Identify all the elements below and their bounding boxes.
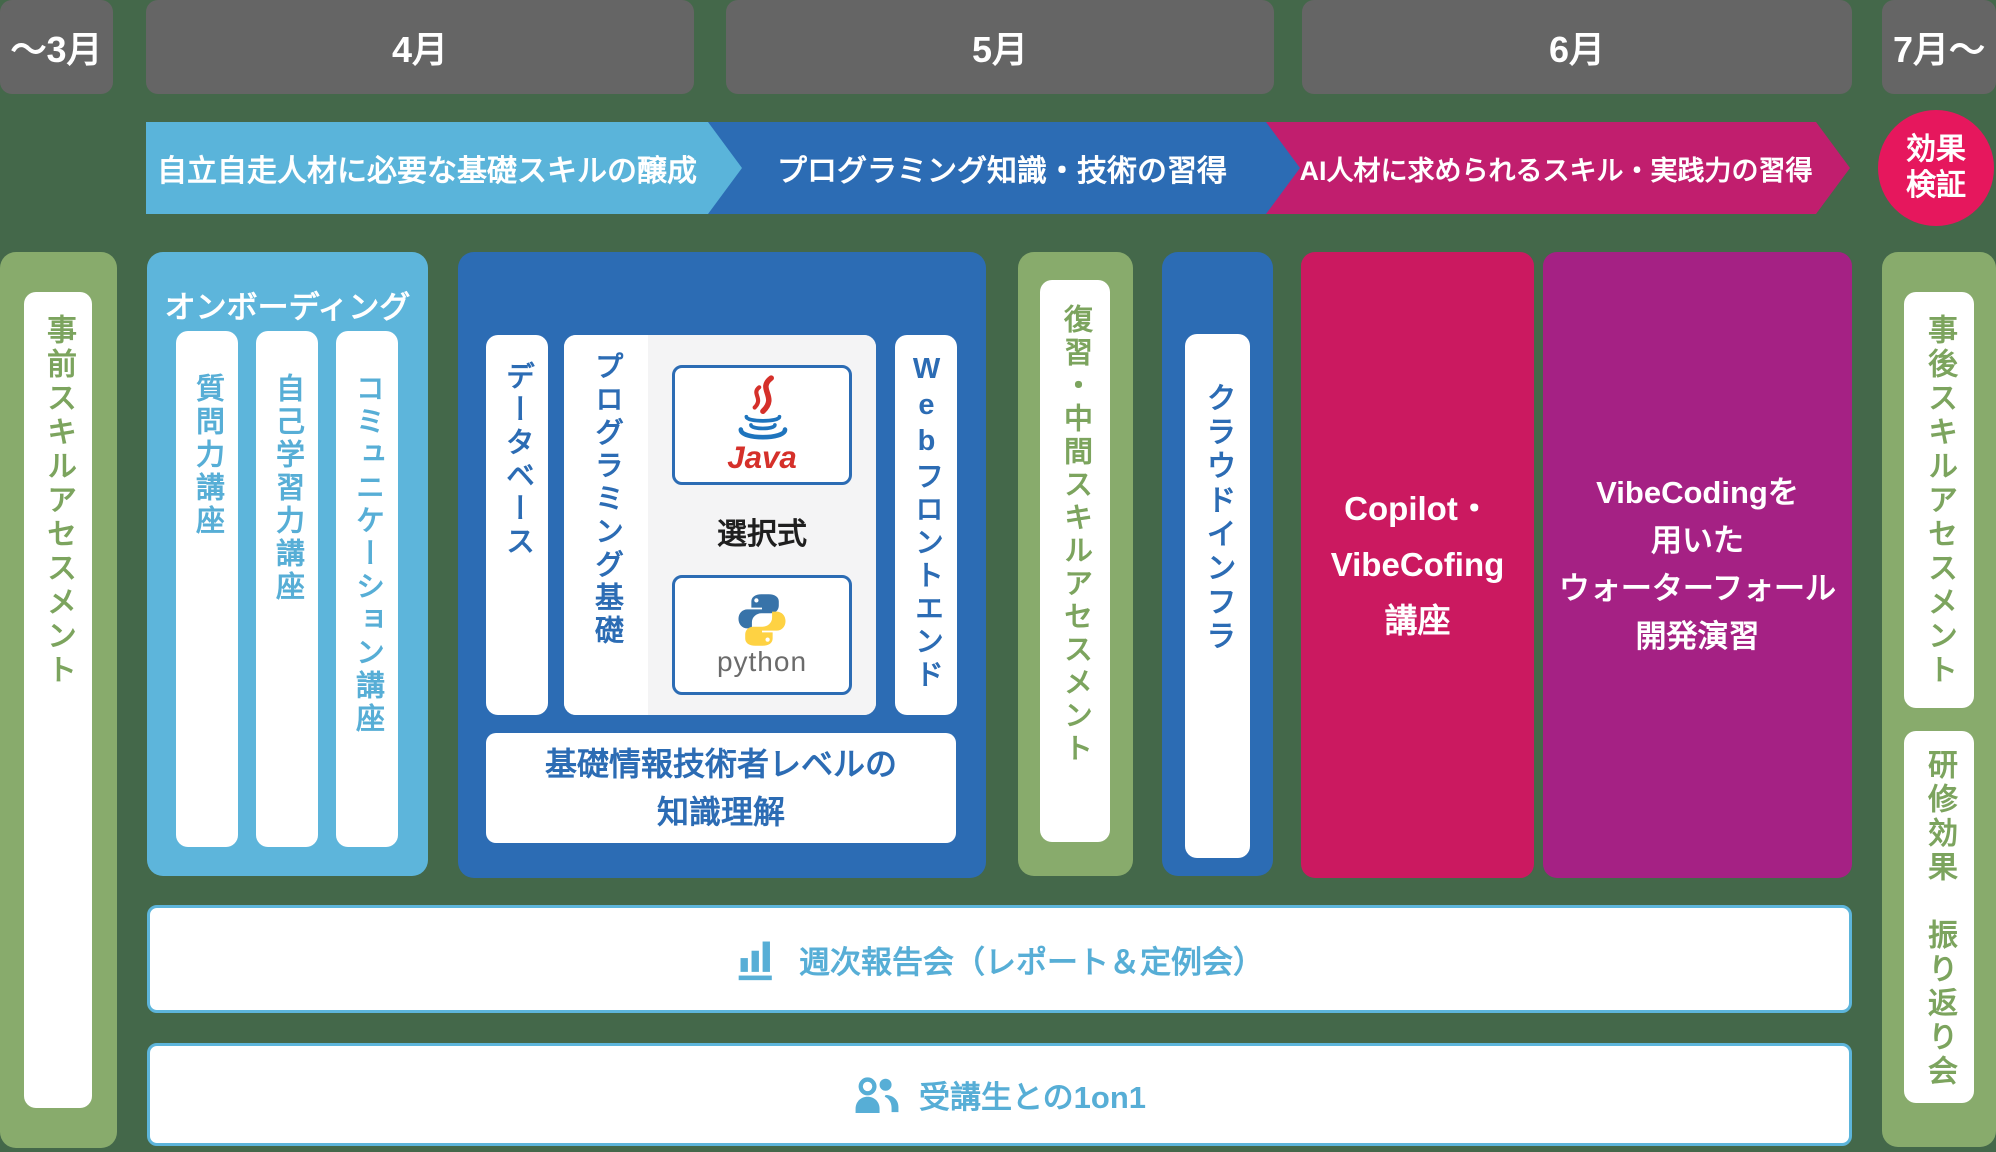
copilot-course-box: Copilot・ VibeCofing 講座 [1301,252,1534,878]
vibecoding-line3: ウォーターフォール [1559,565,1836,613]
java-option-box: Java [672,365,852,485]
month-header-april: 4月 [146,0,694,94]
mid-assessment-pill: 復習・中間スキルアセスメント [1040,280,1110,842]
month-header-july: 7月～ [1882,0,1996,94]
one-on-one-bar: 受講生との1on1 [147,1043,1852,1146]
database-pill: データベース [486,335,548,715]
pre-skill-assessment-column: 事前スキルアセスメント [0,252,117,1148]
programming-basics-label: プログラミング基礎 [592,351,621,715]
cloud-infra-column: クラウドインフラ [1162,252,1273,876]
fe-level-line1: 基礎情報技術者レベルの [545,740,897,788]
copilot-line2: VibeCofing [1331,537,1505,593]
vibecoding-line2: 用いた [1651,517,1744,565]
python-wordmark: python [717,646,807,678]
course-self-learning-label: 自己学習力講座 [273,373,302,847]
post-assessment-column: 事後スキルアセスメント 研修効果 振り返り会 [1882,252,1996,1147]
course-communication-pill: コミュニケーション講座 [336,331,398,847]
java-logo-icon: Java [716,374,808,476]
web-frontend-label: Webフロントエンド [912,353,941,715]
one-on-one-label: 受講生との1on1 [919,1072,1146,1117]
language-choice-panel: Java 選択式 python [648,335,876,715]
phase-arrow-programming: プログラミング知識・技術の習得 [708,122,1300,214]
onboarding-title: オンボーディング [147,282,428,327]
fe-level-box: 基礎情報技術者レベルの 知識理解 [486,733,956,843]
vibecoding-line1: VibeCodingを [1596,469,1799,517]
month-header-march: ～3月 [0,0,113,94]
month-header-june: 6月 [1302,0,1852,94]
web-frontend-pill: Webフロントエンド [895,335,957,715]
course-questioning-pill: 質問力講座 [176,331,238,847]
retrospective-label: 研修効果 振り返り会 [1924,749,1954,1103]
vibecoding-line4: 開発演習 [1636,613,1760,661]
course-questioning-label: 質問力講座 [193,373,222,847]
web-frontend-latin: Web [911,353,943,461]
post-assessment-label: 事後スキルアセスメント [1924,314,1954,708]
post-assessment-pill: 事後スキルアセスメント [1904,292,1974,708]
retrospective-pill: 研修効果 振り返り会 [1904,731,1974,1103]
verify-line2: 検証 [1906,168,1966,204]
phase-arrow-ai-skills: AI人材に求められるスキル・実践力の習得 [1266,122,1850,214]
curriculum-roadmap: ～3月 4月 5月 6月 7月～ 自立自走人材に必要な基礎スキルの醸成 プログラ… [0,0,1996,1152]
python-logo-icon [734,592,790,648]
copilot-course-text: Copilot・ VibeCofing 講座 [1301,252,1534,878]
copilot-line1: Copilot・ [1344,481,1491,537]
vibecoding-exercise-box: VibeCodingを 用いた ウォーターフォール 開発演習 [1543,252,1852,878]
people-icon [853,1074,901,1116]
effect-verification-badge: 効果 検証 [1878,110,1994,226]
vibecoding-exercise-text: VibeCodingを 用いた ウォーターフォール 開発演習 [1543,252,1852,878]
pre-skill-assessment-pill: 事前スキルアセスメント [24,292,92,1108]
programming-basics-pill: プログラミング基礎 [564,335,648,715]
java-wordmark: Java [727,440,797,475]
cloud-infra-label: クラウドインフラ [1203,382,1233,858]
cloud-infra-pill: クラウドインフラ [1185,334,1250,858]
mid-assessment-column: 復習・中間スキルアセスメント [1018,252,1133,876]
database-label: データベース [503,361,532,715]
pre-skill-assessment-label: 事前スキルアセスメント [43,314,73,1108]
web-frontend-kana: フロントエンド [911,461,943,692]
selective-label: 選択式 [717,509,807,553]
course-communication-label: コミュニケーション講座 [353,373,382,847]
python-option-box: python [672,575,852,695]
month-header-may: 5月 [726,0,1274,94]
verify-line1: 効果 [1906,132,1966,168]
weekly-report-label: 週次報告会（レポート＆定例会） [799,937,1264,982]
phase-arrow-basic-skills: 自立自走人材に必要な基礎スキルの醸成 [146,122,742,214]
programming-box: データベース プログラミング基礎 Java 選択式 [458,252,986,878]
course-self-learning-pill: 自己学習力講座 [256,331,318,847]
onboarding-box: オンボーディング 質問力講座 自己学習力講座 コミュニケーション講座 [147,252,428,876]
mid-assessment-label: 復習・中間スキルアセスメント [1061,304,1090,842]
programming-basics-panel: プログラミング基礎 Java 選択式 [564,335,876,715]
fe-level-line2: 知識理解 [657,788,785,836]
copilot-line3: 講座 [1385,593,1451,649]
weekly-report-bar: 週次報告会（レポート＆定例会） [147,905,1852,1013]
bar-chart-icon [735,936,781,982]
